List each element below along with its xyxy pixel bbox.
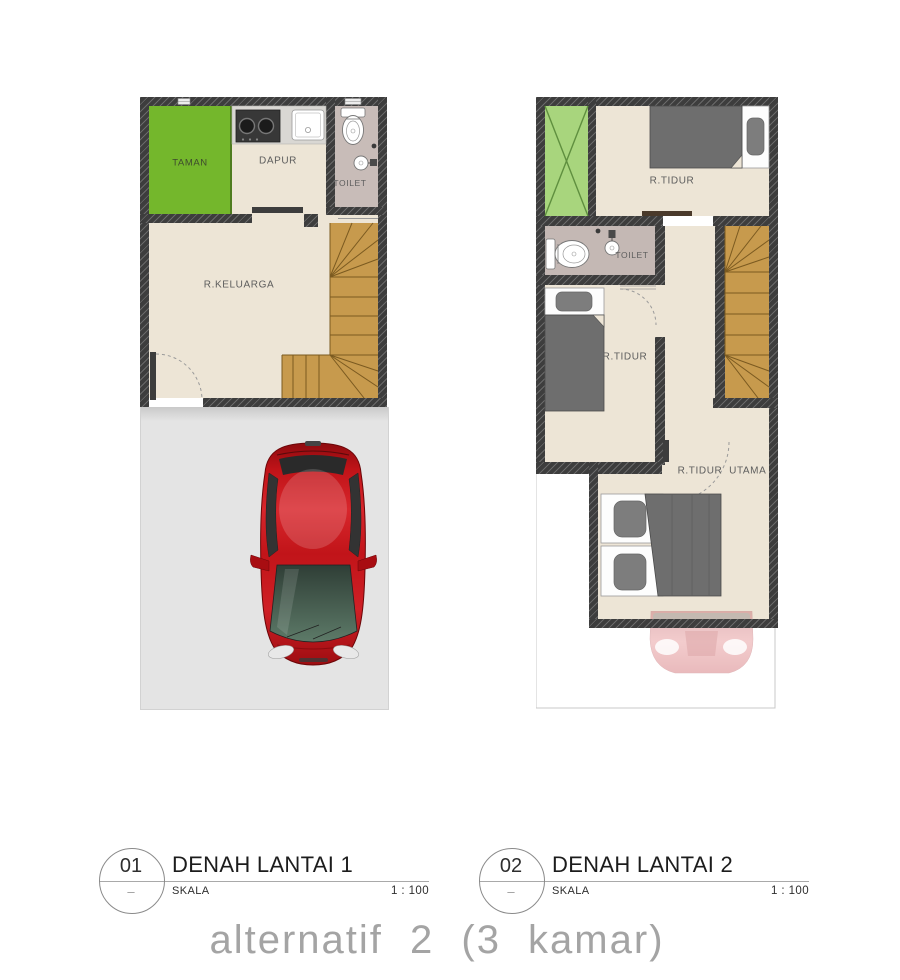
- toilet-fixture-icon: [546, 239, 589, 269]
- caption-number: 01: [99, 855, 163, 878]
- caption-dash: –: [99, 884, 163, 899]
- bed-double-master: [601, 494, 721, 596]
- caption-title: DENAH LANTAI 1: [172, 852, 353, 878]
- room-label-dapur: DAPUR: [259, 156, 297, 167]
- floor1-details: [140, 97, 387, 709]
- room-label-toilet2: TOILET: [615, 250, 648, 260]
- door-leaf: [642, 211, 692, 216]
- room-label-keluarga: R.KELUARGA: [204, 280, 274, 291]
- bed-single-1: [650, 106, 769, 168]
- wash-basin-icon: [354, 144, 377, 170]
- floor1-plan: TAMAN DAPUR TOILET R.KELUARGA: [140, 97, 387, 709]
- floor2-plan: R.TIDUR TOILET R.TIDUR R.TIDUR UTAMA: [536, 97, 778, 709]
- caption-scale-label: SKALA: [552, 885, 589, 897]
- caption-number: 02: [479, 855, 543, 878]
- entry-door: [150, 352, 202, 400]
- toilet-fixture-icon: [341, 108, 365, 145]
- room-label-tidur1: R.TIDUR: [650, 176, 695, 187]
- caption-floor1: 01 – DENAH LANTAI 1 SKALA 1 : 100: [99, 848, 429, 918]
- room-label-utama: R.TIDUR UTAMA: [678, 466, 767, 477]
- sink-icon: [292, 110, 324, 140]
- room-label-tidur2: R.TIDUR: [603, 352, 648, 363]
- door-leaf: [252, 207, 303, 213]
- caption-floor2: 02 – DENAH LANTAI 2 SKALA 1 : 100: [479, 848, 809, 918]
- kitchen-counter: [232, 106, 326, 144]
- room-label-toilet1: TOILET: [333, 178, 366, 188]
- caption-scale-value: 1 : 100: [391, 885, 429, 897]
- caption-scale-label: SKALA: [172, 885, 209, 897]
- window-icon: [178, 99, 361, 105]
- caption-title: DENAH LANTAI 2: [552, 852, 733, 878]
- caption-scale-value: 1 : 100: [771, 885, 809, 897]
- floorplan-sheet: TAMAN DAPUR TOILET R.KELUARGA: [0, 0, 900, 980]
- floor2-details: [536, 97, 778, 709]
- sheet-title: alternatif 2 (3 kamar): [0, 918, 887, 963]
- caption-dash: –: [479, 884, 543, 899]
- bed-single-2: [545, 288, 604, 411]
- bedroom2-door: [620, 286, 656, 325]
- void-cross-icon: [545, 106, 588, 216]
- room-label-taman: TAMAN: [172, 158, 208, 169]
- stairs-treads: [282, 223, 378, 398]
- stairs-treads: [725, 226, 769, 398]
